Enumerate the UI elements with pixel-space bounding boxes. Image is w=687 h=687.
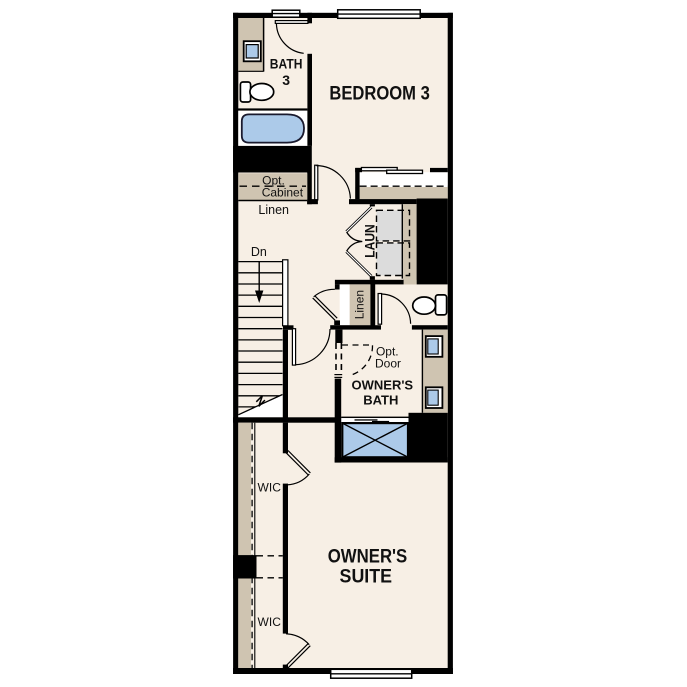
svg-text:OWNER'S: OWNER'S — [328, 546, 408, 567]
svg-text:Linen: Linen — [352, 290, 366, 319]
svg-text:SUITE: SUITE — [340, 566, 393, 587]
svg-text:Cabinet: Cabinet — [262, 186, 304, 200]
svg-text:WIC: WIC — [258, 615, 282, 629]
svg-text:Door: Door — [375, 357, 401, 371]
svg-text:BATH: BATH — [363, 393, 398, 408]
svg-text:BATH: BATH — [270, 56, 303, 72]
svg-text:OWNER'S: OWNER'S — [352, 377, 414, 392]
svg-text:WIC: WIC — [258, 481, 282, 495]
svg-text:3: 3 — [282, 72, 290, 88]
svg-text:Dn: Dn — [251, 245, 267, 259]
svg-text:LAUN: LAUN — [362, 224, 378, 258]
svg-text:BEDROOM 3: BEDROOM 3 — [329, 84, 430, 105]
svg-text:Linen: Linen — [258, 203, 289, 217]
